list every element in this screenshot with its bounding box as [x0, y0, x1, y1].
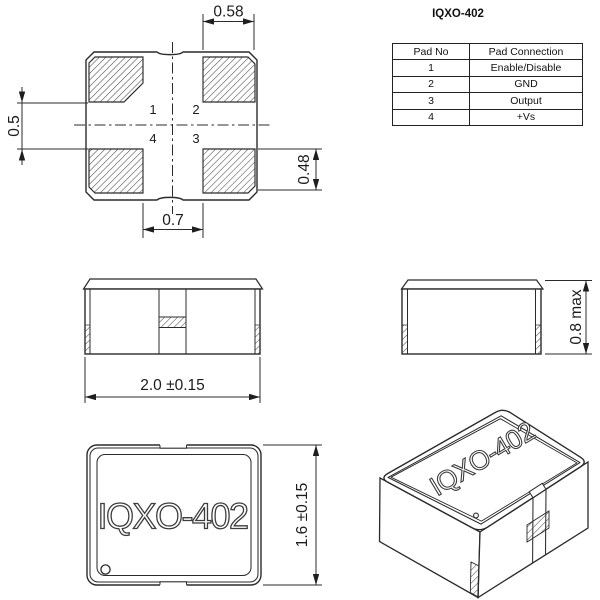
pad-layout-dim-top: 0.58 [213, 4, 243, 21]
technical-drawing-page: { "pad_layout": { "pads": ["1", "2", "3"… [0, 0, 600, 600]
pad-connection-cell: Enable/Disable [470, 60, 583, 76]
front-center-pad [159, 317, 186, 328]
pad-table-header-row: Pad No Pad Connection [393, 44, 583, 60]
dim-length [263, 445, 322, 585]
pad-no-cell: 4 [393, 109, 470, 125]
side-view [402, 280, 593, 354]
table-row: 1 Enable/Disable [393, 60, 583, 76]
pad-number-3: 3 [192, 131, 199, 146]
table-row: 4 +Vs [393, 109, 583, 125]
top-view-height-dim: 1.6 ±0.15 [294, 483, 311, 548]
table-row: 2 GND [393, 76, 583, 92]
pad-layout-view [17, 14, 322, 238]
top-view-marking: IQXO-402 [97, 496, 248, 537]
pad-4-shape [89, 149, 143, 193]
pad-number-1: 1 [149, 102, 156, 117]
pad-connection-cell: GND [470, 76, 583, 92]
side-body [402, 289, 541, 354]
pad-number-4: 4 [149, 131, 156, 146]
pad-table-col-pad-no: Pad No [393, 44, 470, 60]
pad-connection-cell: +Vs [470, 109, 583, 125]
front-view-width-dim: 2.0 ±0.15 [140, 377, 205, 394]
pad-no-cell: 1 [393, 60, 470, 76]
pad-table-col-connection: Pad Connection [470, 44, 583, 60]
pad-layout-dim-right: 0.48 [296, 154, 313, 184]
pad-layout-dim-left: 0.5 [6, 115, 23, 137]
front-lid [84, 279, 263, 289]
pad-no-cell: 2 [393, 76, 470, 92]
pad-no-cell: 3 [393, 93, 470, 109]
side-left-castellation [402, 325, 408, 354]
pad-2-shape [203, 57, 255, 102]
front-right-castellation [255, 325, 260, 354]
side-view-height-dim: 0.8 max [568, 289, 585, 344]
table-row: 3 Output [393, 93, 583, 109]
dim-0-5 [17, 87, 88, 165]
pad-table-title: IQXO-402 [370, 8, 546, 20]
pad-table: Pad No Pad Connection 1 Enable/Disable 2… [392, 43, 580, 126]
pad-number-2: 2 [192, 102, 199, 117]
pad-layout-dim-bottom: 0.7 [162, 212, 184, 229]
pad-3-shape [203, 149, 255, 193]
side-lid [402, 280, 544, 289]
iso-front-castellation [470, 562, 479, 597]
iso-view [380, 410, 589, 597]
front-left-castellation [85, 325, 90, 354]
pad-connection-cell: Output [470, 93, 583, 109]
side-right-castellation [536, 325, 542, 354]
